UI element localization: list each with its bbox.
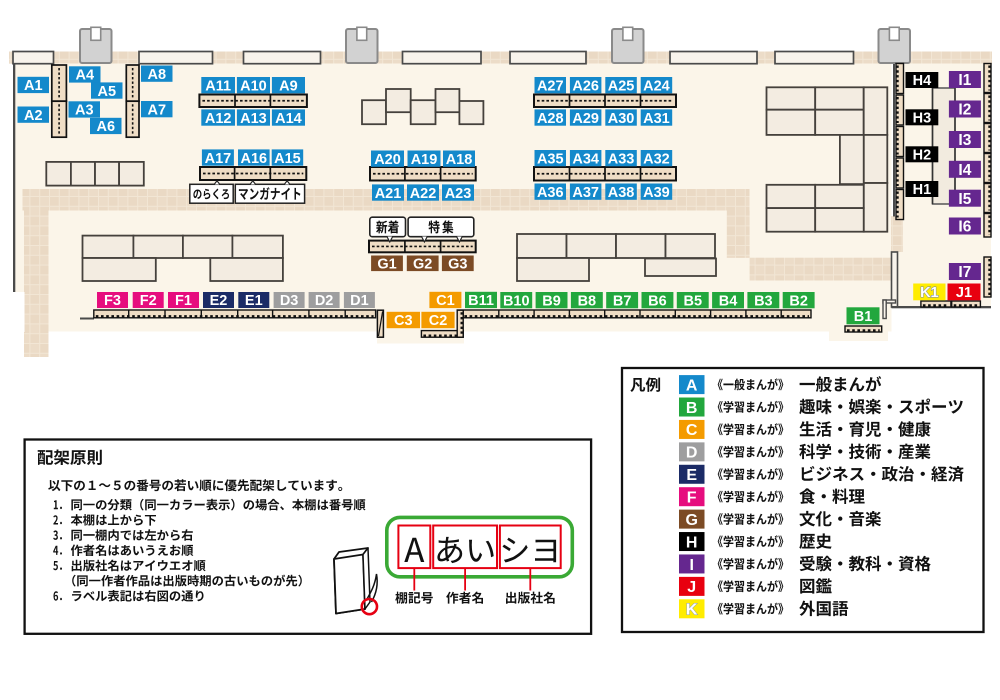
svg-text:A35: A35 [537, 151, 564, 167]
svg-text:G2: G2 [413, 257, 432, 273]
svg-text:B10: B10 [503, 293, 530, 309]
svg-text:B3: B3 [754, 293, 773, 309]
svg-text:A36: A36 [537, 185, 564, 201]
svg-text:F2: F2 [140, 293, 157, 309]
svg-text:F1: F1 [175, 293, 192, 309]
svg-text:J1: J1 [956, 285, 972, 301]
svg-text:A12: A12 [205, 111, 232, 127]
svg-text:A24: A24 [643, 78, 670, 94]
svg-text:A15: A15 [274, 151, 301, 167]
svg-text:D2: D2 [315, 293, 334, 309]
svg-text:D3: D3 [280, 293, 299, 309]
svg-text:A8: A8 [147, 67, 166, 83]
svg-text:I2: I2 [958, 102, 971, 119]
svg-text:H4: H4 [913, 73, 932, 89]
svg-text:A29: A29 [572, 111, 599, 127]
svg-text:I4: I4 [958, 162, 971, 179]
svg-text:E1: E1 [245, 293, 263, 309]
svg-text:A13: A13 [240, 111, 267, 127]
svg-text:C: C [686, 422, 698, 439]
svg-text:A4: A4 [75, 68, 94, 84]
svg-text:A39: A39 [643, 185, 670, 201]
svg-text:B1: B1 [854, 309, 873, 325]
svg-text:A14: A14 [275, 111, 302, 127]
svg-text:A18: A18 [446, 152, 473, 168]
svg-text:I5: I5 [958, 191, 971, 208]
svg-text:B2: B2 [789, 293, 808, 309]
svg-text:A22: A22 [410, 186, 437, 202]
svg-text:A9: A9 [279, 78, 298, 94]
svg-text:A1: A1 [24, 78, 43, 94]
svg-text:H3: H3 [913, 111, 932, 127]
svg-text:B4: B4 [719, 293, 738, 309]
svg-text:A6: A6 [96, 119, 115, 135]
svg-text:B5: B5 [683, 293, 702, 309]
svg-text:A31: A31 [643, 111, 670, 127]
svg-text:B8: B8 [578, 293, 597, 309]
svg-text:A19: A19 [411, 152, 438, 168]
svg-text:B11: B11 [468, 293, 494, 309]
svg-text:C1: C1 [436, 293, 455, 309]
svg-text:A16: A16 [240, 151, 267, 167]
svg-text:C2: C2 [429, 313, 448, 329]
svg-text:A17: A17 [205, 151, 232, 167]
svg-text:E: E [686, 467, 697, 484]
svg-text:A28: A28 [537, 111, 564, 127]
svg-text:B: B [686, 400, 698, 417]
svg-text:A26: A26 [572, 78, 599, 94]
svg-text:A38: A38 [608, 185, 635, 201]
svg-text:J: J [687, 579, 696, 596]
svg-text:E2: E2 [210, 293, 228, 309]
svg-text:C3: C3 [394, 313, 413, 329]
svg-text:H1: H1 [913, 182, 932, 198]
svg-text:I7: I7 [958, 264, 971, 281]
svg-text:A30: A30 [608, 111, 635, 127]
svg-text:B9: B9 [542, 293, 561, 309]
svg-text:I6: I6 [958, 219, 971, 236]
svg-text:G1: G1 [377, 257, 396, 273]
svg-text:I1: I1 [958, 72, 971, 89]
svg-text:I3: I3 [958, 132, 971, 149]
svg-text:A32: A32 [643, 151, 670, 167]
svg-text:A3: A3 [75, 103, 94, 119]
svg-text:A37: A37 [572, 185, 599, 201]
svg-text:A27: A27 [537, 78, 564, 94]
svg-text:A25: A25 [608, 78, 635, 94]
svg-text:A2: A2 [24, 108, 43, 124]
svg-text:A21: A21 [375, 186, 402, 202]
svg-text:A5: A5 [97, 84, 116, 100]
svg-text:A23: A23 [445, 186, 472, 202]
svg-text:A7: A7 [147, 102, 166, 118]
svg-text:A11: A11 [205, 78, 231, 94]
svg-text:A10: A10 [240, 78, 267, 94]
svg-text:F: F [687, 490, 697, 507]
svg-text:D: D [686, 445, 698, 462]
svg-text:A: A [686, 377, 698, 394]
svg-text:A34: A34 [572, 151, 599, 167]
svg-text:G: G [685, 512, 697, 529]
svg-text:F3: F3 [104, 293, 121, 309]
svg-text:A20: A20 [374, 152, 401, 168]
svg-text:K1: K1 [920, 285, 939, 301]
svg-text:H2: H2 [913, 148, 932, 164]
svg-text:I: I [689, 557, 693, 574]
svg-text:B6: B6 [648, 293, 667, 309]
svg-text:A33: A33 [608, 151, 635, 167]
svg-text:D1: D1 [350, 293, 369, 309]
svg-text:H: H [686, 534, 698, 551]
svg-text:B7: B7 [613, 293, 632, 309]
svg-text:K: K [686, 602, 698, 619]
svg-text:G3: G3 [448, 257, 467, 273]
